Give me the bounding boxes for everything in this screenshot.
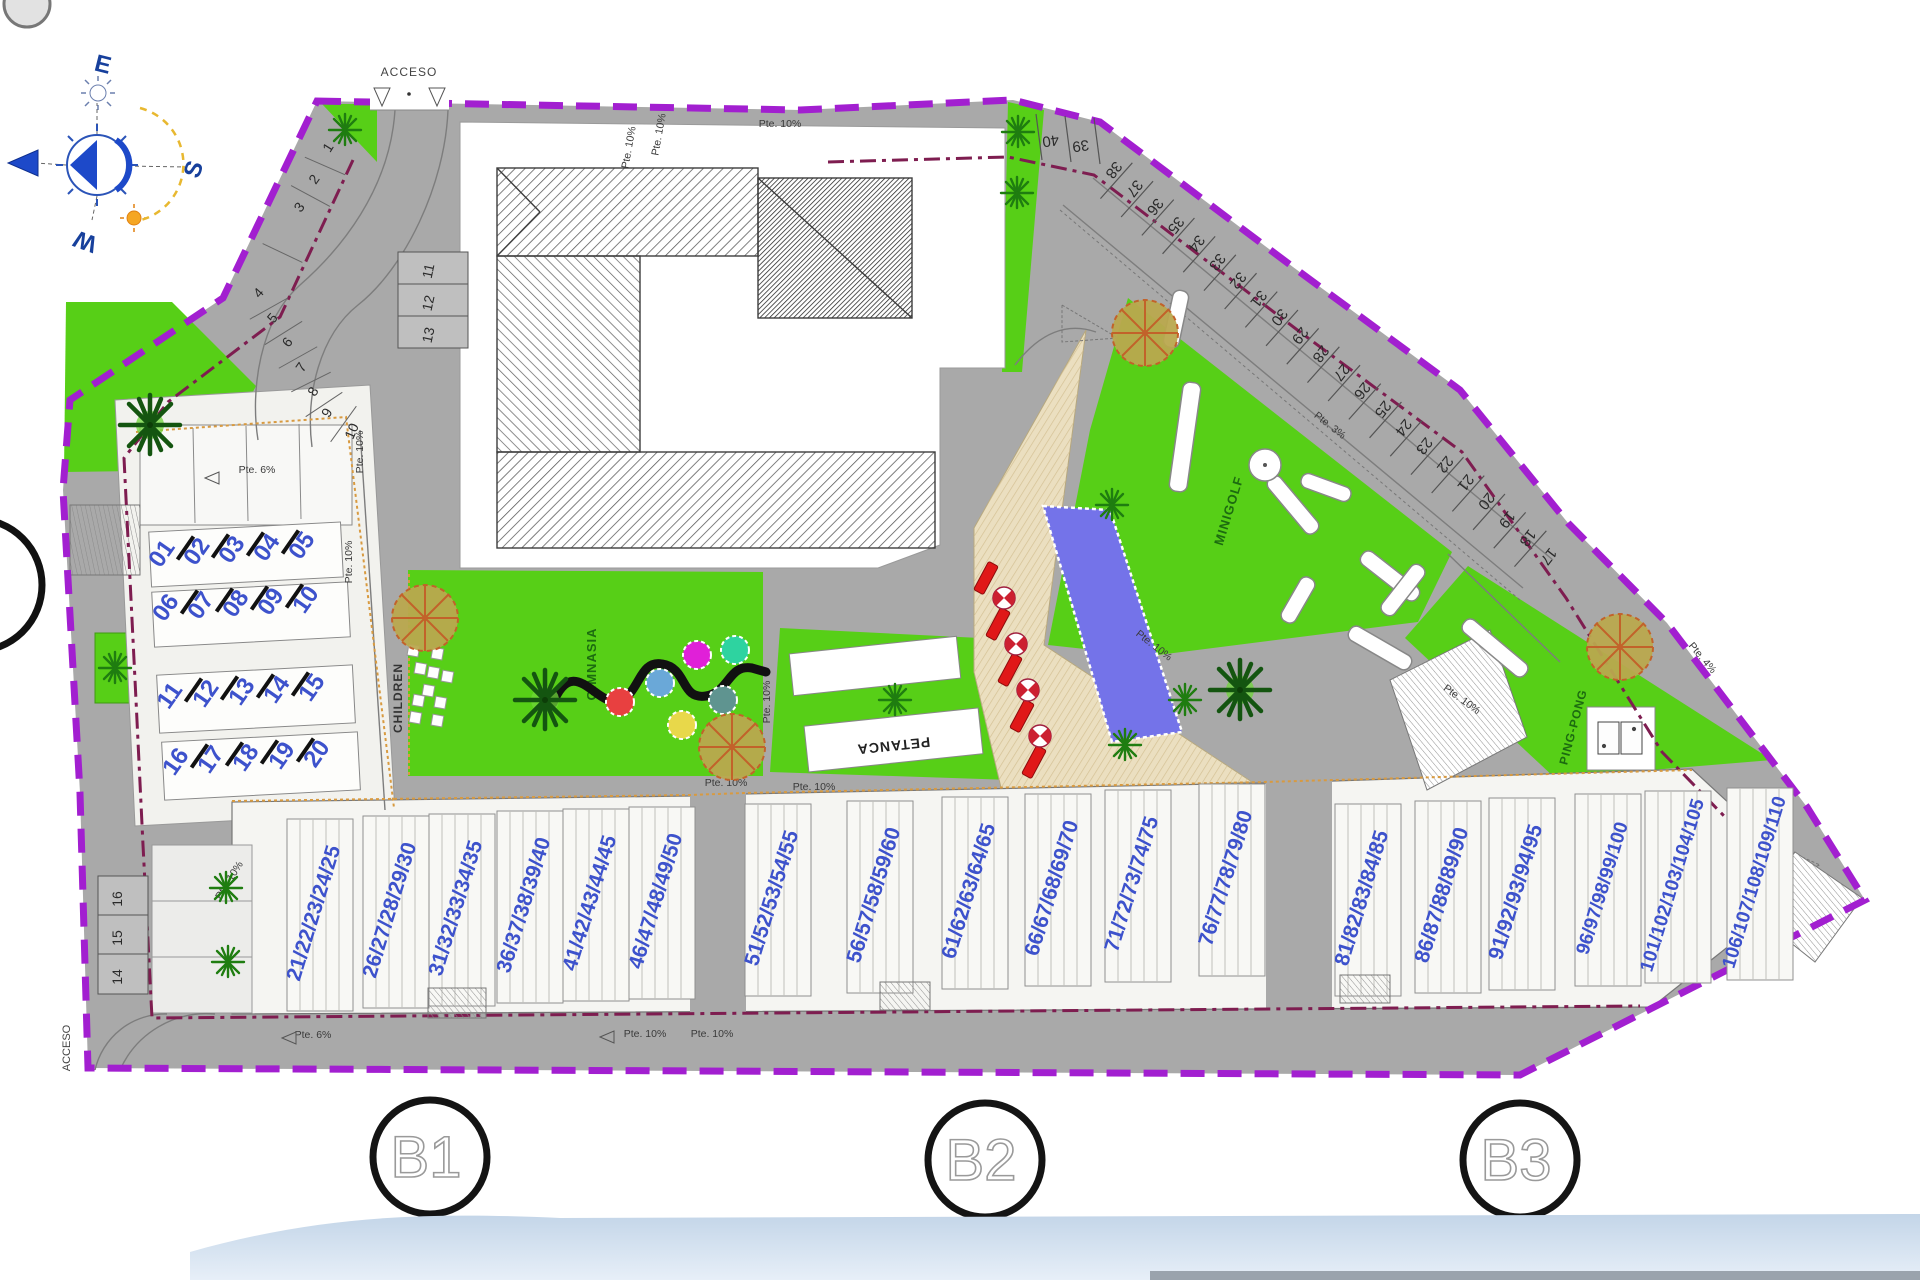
bottom-blue-band [190,1214,1920,1280]
palm-tree-large-icon [1210,660,1270,719]
acceso-bottom-label: ACCESO [61,1024,73,1071]
acceso-top-entrance: ACCESO [370,65,449,110]
gym-equipment-circle [606,688,634,716]
sun-path-arc [140,108,183,220]
slope-label-pte10-8: Pte. 10% [793,781,836,793]
site-plan-drawing: ACCESO ACCESO GIMNASIA CHILDREN PETANCA … [0,0,1920,1280]
slope-label-pte6-0: Pte. 6% [239,464,276,476]
section-b1-label: B1 [391,1125,462,1190]
gym-equipment-circle [721,636,749,664]
palm-tree-icon [1109,729,1141,760]
palm-tree-icon [1001,177,1033,208]
children-play-square [441,670,454,683]
acceso-top-label: ACCESO [381,65,438,79]
parking-space-16: 16 [109,891,125,907]
gym-equipment-circle [709,686,737,714]
slope-label-pte10-6: Pte. 10% [761,681,773,724]
stair-block [428,988,486,1018]
palm-tree-icon [212,946,244,977]
slope-label-pte10-2: Pte. 10% [343,541,355,584]
tree-icon [1587,614,1653,680]
children-play-square [414,662,427,675]
palm-tree-icon [879,684,911,715]
palm-tree-icon [329,114,361,145]
tree-icon [699,714,765,780]
gym-equipment-circle [683,641,711,669]
children-play-square [422,684,435,697]
parking-space-15: 15 [109,930,125,946]
children-play-square [431,714,444,727]
palm-tree-icon [1002,116,1034,147]
children-play-square [434,696,447,709]
palm-tree-large-icon [120,395,180,454]
stair-block [1340,975,1390,1003]
palm-tree-icon [1096,489,1128,520]
compass-rose: E S W [8,50,209,258]
children-play-square [409,711,422,724]
tree-icon [1112,300,1178,366]
road-gap-b2-b3 [1266,780,1332,1010]
road-gap-b1-b2 [690,793,746,1015]
gym-equipment-circle [668,711,696,739]
slope-label-pte10-9: Pte. 10% [624,1028,667,1040]
palm-tree-icon [99,652,131,683]
section-markers: B1 B2 B3 [373,1100,1577,1217]
bottom-gray-strip [1150,1271,1920,1280]
minigolf-hole [1263,463,1267,467]
site-plan-canvas: ACCESO ACCESO GIMNASIA CHILDREN PETANCA … [0,0,1920,1280]
compass-east-label: E [92,50,114,80]
slope-label-pte10-10: Pte. 10% [691,1028,734,1040]
palm-tree-icon [1169,684,1201,715]
parking-space-14: 14 [109,969,125,985]
slope-label-pte10-5: Pte. 10% [759,118,802,130]
north-arrow [8,150,38,176]
section-b2-label: B2 [946,1128,1017,1193]
tree-icon [392,585,458,651]
sun-icon-top [81,76,115,110]
compass-west-label: W [70,224,101,257]
palm-tree-icon [210,872,242,903]
gym-equipment-circle [646,669,674,697]
section-b3-label: B3 [1481,1128,1552,1193]
compass-south-label: S [179,157,210,181]
children-play-square [412,694,425,707]
pingpong-area [1587,707,1655,770]
palm-tree-large-icon [515,670,575,729]
children-play-square [427,666,440,679]
stair-block [880,982,930,1010]
slope-label-pte10-1: Pte. 10% [354,431,366,474]
left-edge-marker-circle [0,519,42,651]
slope-label-pte6-11: Pte. 6% [295,1029,332,1041]
parking-space-40: 40 [1041,131,1060,150]
children-area-label: CHILDREN [391,663,405,733]
parking-space-39: 39 [1071,136,1090,155]
top-left-marker-circle [4,0,50,27]
